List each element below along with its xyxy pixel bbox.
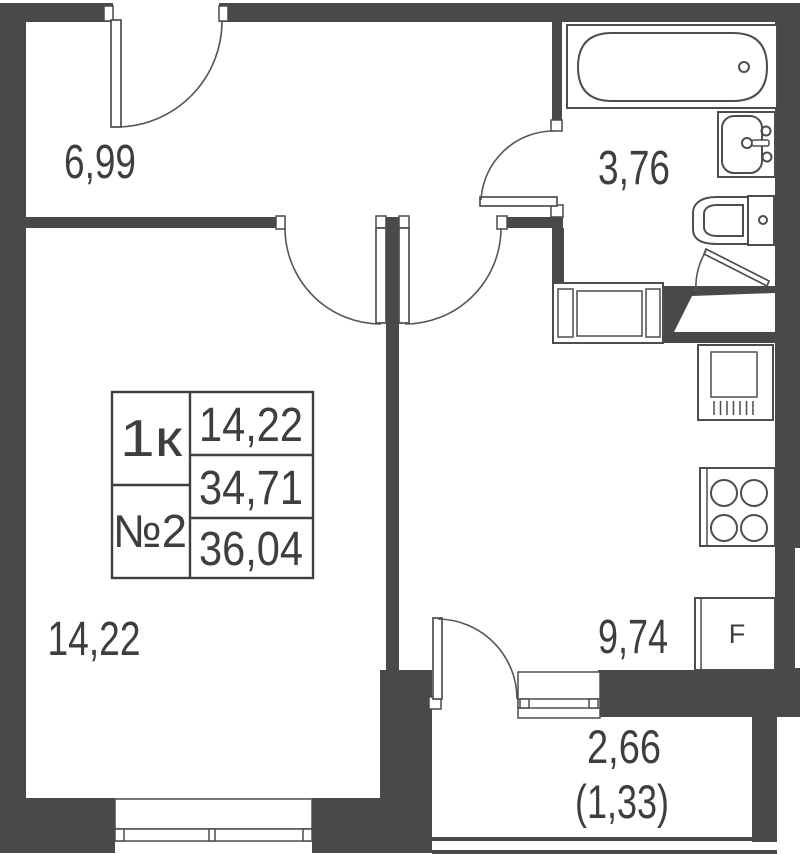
wall-bath-kitchen-vert <box>552 228 564 285</box>
stove <box>700 468 775 546</box>
pillar-kitchen-corner <box>380 670 432 853</box>
wall-bottom-left <box>0 798 115 853</box>
living-room-door-leaf <box>376 228 386 323</box>
bathroom-area-label: 3,76 <box>598 142 670 195</box>
bathtub-outline <box>567 25 777 108</box>
jamb <box>399 216 409 228</box>
toilet-tank <box>748 196 774 245</box>
window-frame <box>518 699 600 708</box>
fridge: F <box>695 598 775 670</box>
balcony-door-leaf <box>433 618 442 699</box>
washing-machine <box>553 283 663 343</box>
window-sill <box>115 799 312 829</box>
window-end <box>303 829 312 841</box>
glazing-inner-line <box>432 837 752 841</box>
unit-living-area-value: 34,71 <box>199 462 303 515</box>
kitchen-sink-unit <box>698 345 773 420</box>
balcony-reduced-area-label: (1,33) <box>575 775 669 828</box>
unit-total-area-value: 36,04 <box>199 523 303 576</box>
living-room-area-label: 14,22 <box>48 613 141 666</box>
bathroom-door-leaf <box>480 197 557 206</box>
fridge-label: F <box>729 619 746 649</box>
sink-spout <box>752 140 769 146</box>
bathroom-sink <box>718 112 775 177</box>
kitchen-balcony-window <box>518 672 600 718</box>
wall-balcony-right <box>752 717 777 842</box>
jamb <box>219 6 228 21</box>
unit-type-label: 1к <box>120 410 182 468</box>
entrance-door-leaf <box>111 20 121 127</box>
wall-hall-bath <box>552 22 562 120</box>
jamb <box>104 6 113 21</box>
jamb <box>376 216 386 228</box>
wall-joint-notch <box>795 548 800 668</box>
jamb <box>551 120 562 131</box>
window-sill <box>518 672 600 718</box>
wall-kitchen-bottom <box>598 670 800 717</box>
balcony-area-label: 2,66 <box>587 720 661 773</box>
unit-outline <box>698 345 773 420</box>
unit-vent-lines <box>714 401 753 415</box>
wall-hall-room <box>26 217 276 228</box>
stove-outline <box>700 468 775 546</box>
living-room-window <box>115 799 312 841</box>
window-end <box>520 699 529 708</box>
bathtub <box>567 25 777 108</box>
wall-hall-kitchen <box>506 217 563 228</box>
jamb <box>497 216 507 229</box>
toilet <box>693 196 774 245</box>
window-mullion <box>209 829 215 841</box>
hallway-area-label: 6,99 <box>64 136 136 189</box>
glazing-outer-line <box>432 850 777 854</box>
floor-plan-page: F 6,99 3,76 14,22 9,74 2,66 (1,33) 1к №2… <box>0 0 800 854</box>
info-table: 1к №2 14,22 34,71 36,04 <box>112 392 313 578</box>
unit-number-label: №2 <box>113 505 187 557</box>
wall-room-kitchen <box>386 217 399 670</box>
kitchen-area-label: 9,74 <box>598 611 668 664</box>
window-end <box>115 829 124 841</box>
jamb <box>276 216 285 229</box>
unit-room-area-value: 14,22 <box>199 399 303 452</box>
floor-plan: F 6,99 3,76 14,22 9,74 2,66 (1,33) 1к №2… <box>0 0 800 854</box>
window-end <box>589 699 598 708</box>
kitchen-door-leaf <box>399 228 409 323</box>
wall-bath-diagonal-lower <box>664 332 775 343</box>
